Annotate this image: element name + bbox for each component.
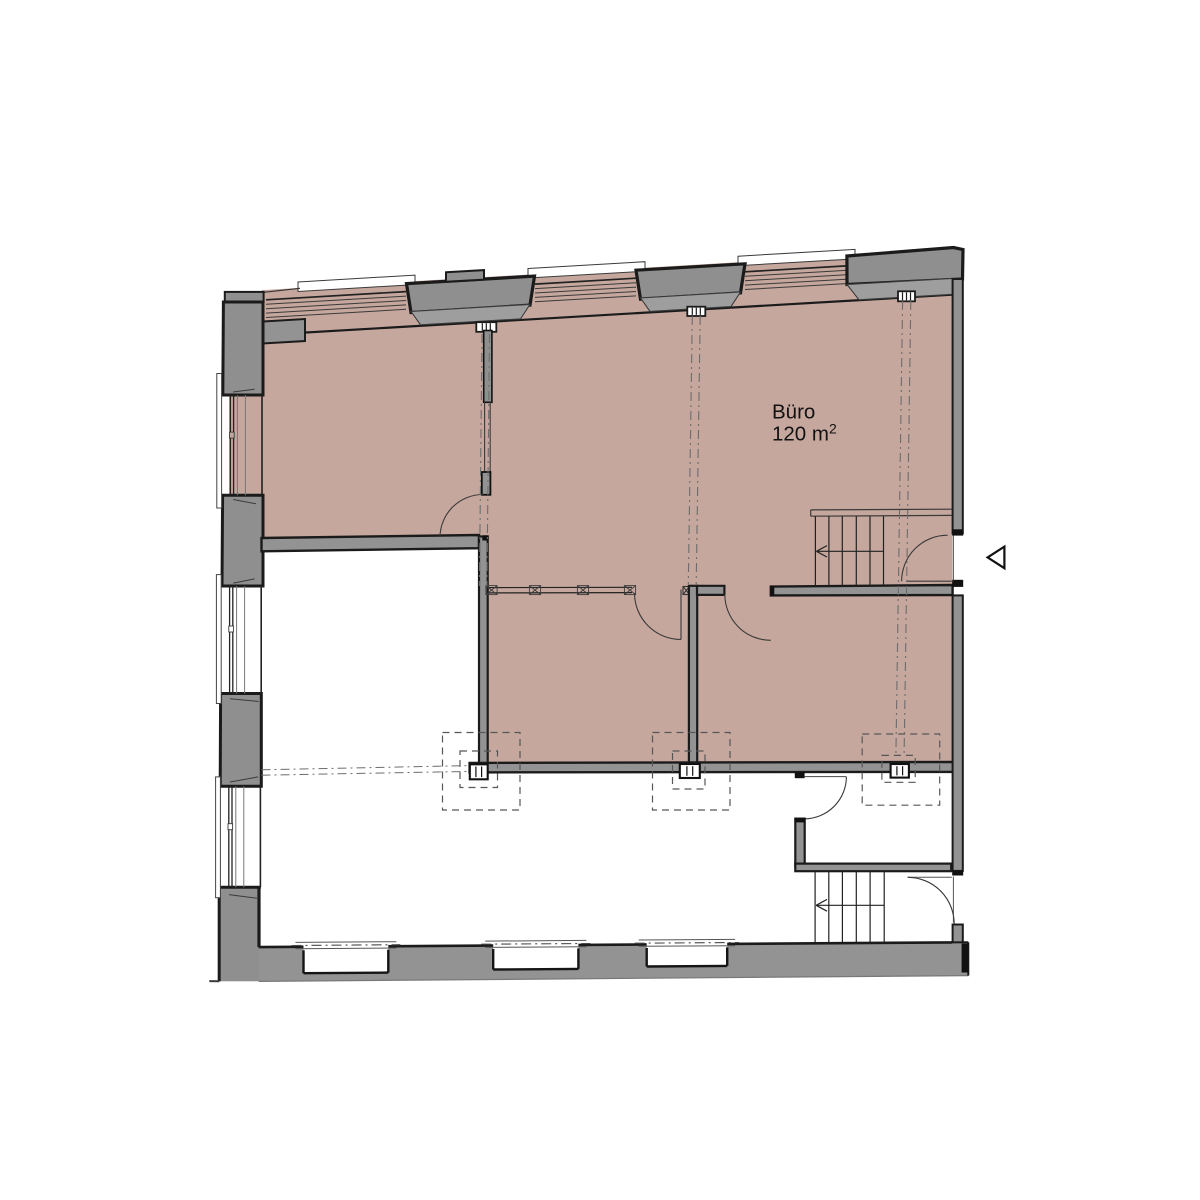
svg-text:120 m2: 120 m2 (772, 421, 837, 446)
svg-text:Büro: Büro (772, 401, 815, 424)
